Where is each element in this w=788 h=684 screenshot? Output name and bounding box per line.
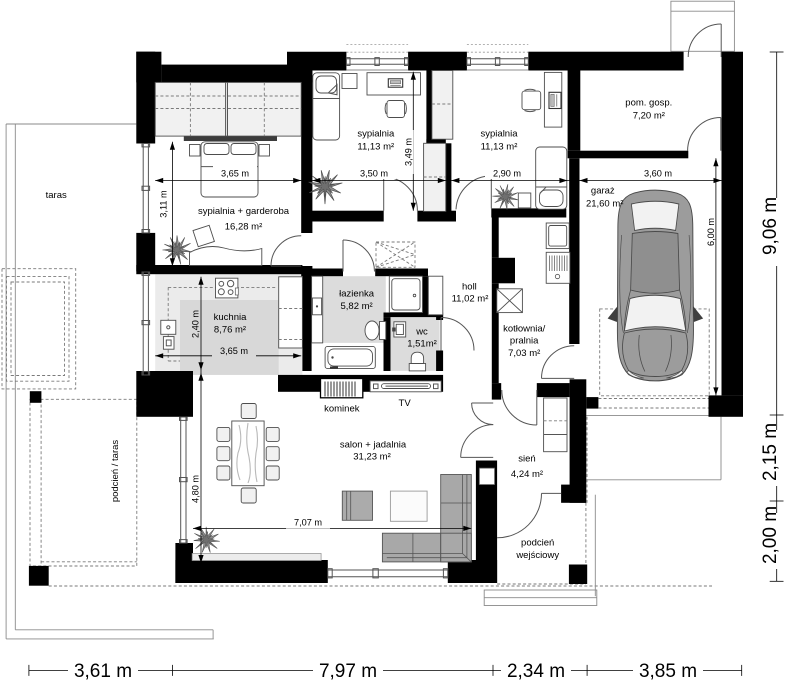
svg-text:sypialnia: sypialnia: [481, 129, 519, 140]
svg-text:3,65 m: 3,65 m: [220, 346, 248, 356]
svg-text:2,15 m: 2,15 m: [760, 423, 781, 481]
svg-text:3,61 m: 3,61 m: [74, 661, 132, 682]
svg-text:podcień / taras: podcień / taras: [110, 440, 121, 503]
svg-text:holl: holl: [462, 282, 477, 293]
svg-text:2,34 m: 2,34 m: [507, 661, 565, 682]
svg-text:16,28 m²: 16,28 m²: [225, 222, 263, 233]
svg-text:7,20 m²: 7,20 m²: [633, 111, 665, 122]
svg-text:sypialnia: sypialnia: [357, 129, 395, 140]
svg-text:wejściowy: wejściowy: [515, 550, 559, 561]
svg-text:salon + jadalnia: salon + jadalnia: [340, 440, 407, 451]
svg-text:kuchnia: kuchnia: [214, 312, 247, 323]
svg-text:3,50 m: 3,50 m: [360, 169, 388, 179]
svg-text:garaż: garaż: [591, 186, 615, 197]
svg-text:7,07 m: 7,07 m: [294, 518, 322, 528]
svg-text:7,97 m: 7,97 m: [319, 661, 377, 682]
svg-text:pralnia: pralnia: [510, 336, 539, 347]
svg-text:8,76 m²: 8,76 m²: [214, 325, 246, 336]
svg-text:3,65 m: 3,65 m: [221, 169, 249, 179]
svg-text:6,00 m: 6,00 m: [706, 218, 716, 246]
svg-text:sypialnia + garderoba: sypialnia + garderoba: [198, 206, 290, 217]
svg-text:kominek: kominek: [324, 404, 360, 415]
svg-text:łazienka: łazienka: [339, 289, 375, 300]
svg-text:podcień: podcień: [521, 538, 554, 549]
svg-text:11,13 m²: 11,13 m²: [481, 142, 518, 153]
svg-text:2,00 m: 2,00 m: [760, 506, 781, 564]
svg-text:3,60 m: 3,60 m: [644, 169, 672, 179]
svg-text:11,13 m²: 11,13 m²: [357, 142, 394, 153]
svg-text:kotłownia/: kotłownia/: [503, 324, 546, 335]
svg-text:3,49 m: 3,49 m: [404, 138, 414, 166]
svg-text:1,51m²: 1,51m²: [407, 339, 437, 350]
svg-text:pom. gosp.: pom. gosp.: [625, 98, 672, 109]
svg-text:2,40 m: 2,40 m: [191, 310, 201, 338]
svg-text:taras: taras: [46, 190, 67, 201]
svg-text:2,90 m: 2,90 m: [493, 169, 521, 179]
svg-text:3,85 m: 3,85 m: [639, 661, 697, 682]
svg-text:sień: sień: [518, 454, 535, 465]
svg-text:5,82 m²: 5,82 m²: [340, 301, 372, 312]
svg-text:4,24 m²: 4,24 m²: [511, 469, 543, 480]
svg-text:4,80 m: 4,80 m: [191, 475, 201, 503]
svg-text:9,06 m: 9,06 m: [760, 197, 781, 255]
svg-text:wc: wc: [415, 327, 428, 338]
svg-text:7,03 m²: 7,03 m²: [508, 348, 540, 359]
svg-text:11,02 m²: 11,02 m²: [452, 294, 489, 305]
svg-text:3,11 m: 3,11 m: [159, 190, 169, 218]
svg-text:TV: TV: [399, 398, 412, 409]
svg-text:21,60 m²: 21,60 m²: [586, 199, 624, 210]
svg-text:31,23 m²: 31,23 m²: [353, 452, 391, 463]
